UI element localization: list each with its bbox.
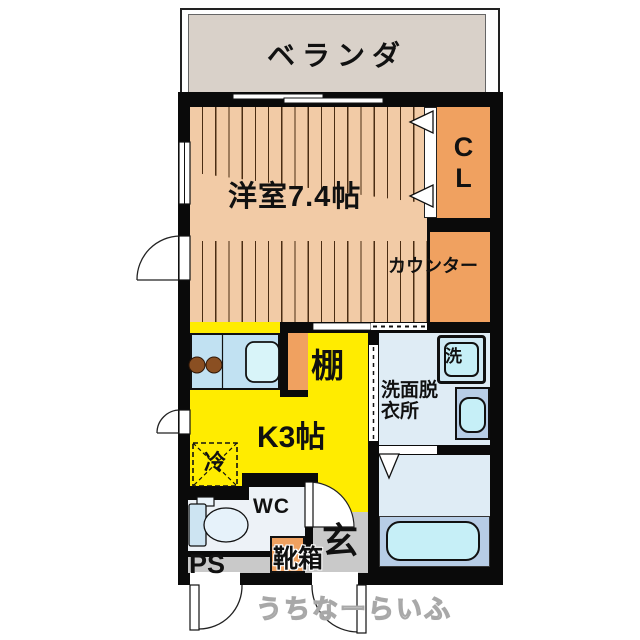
wc-label: WC bbox=[253, 495, 290, 518]
washroom-label: 洗面脱 衣所 bbox=[381, 380, 438, 422]
western-room-label: 洋室7.4帖 bbox=[228, 182, 361, 214]
entrance-label: 玄 bbox=[322, 521, 358, 561]
window-symbol bbox=[179, 142, 190, 204]
shoe-box-label: 靴箱 bbox=[273, 546, 323, 574]
folding-door-symbol bbox=[410, 111, 433, 207]
kitchen-label: K3帖 bbox=[257, 421, 325, 454]
sliding-door-symbol bbox=[313, 323, 427, 330]
shelf-label: 棚 bbox=[311, 348, 344, 384]
door-arc-symbol bbox=[190, 585, 242, 630]
watermark-text: うちなーらいふ bbox=[256, 595, 452, 624]
toilet-symbol bbox=[189, 497, 248, 546]
kitchen-sink-symbol bbox=[246, 342, 279, 382]
symbols-overlay bbox=[0, 0, 640, 640]
sliding-door-symbol bbox=[369, 345, 378, 441]
stove-burners-symbol bbox=[189, 334, 223, 389]
door-arc-symbol bbox=[137, 236, 190, 280]
folding-door-symbol bbox=[379, 446, 437, 478]
door-arc-symbol bbox=[157, 410, 190, 434]
washroom-label-line2: 衣所 bbox=[381, 401, 419, 422]
refrigerator-label: 冷 bbox=[204, 451, 226, 475]
washing-machine-label: 洗 bbox=[445, 348, 462, 367]
counter-label: カウンター bbox=[388, 257, 478, 277]
pipe-space-label: PS bbox=[189, 550, 225, 580]
washroom-label-line1: 洗面脱 bbox=[381, 380, 438, 401]
floorplan-canvas: ベランダ C L bbox=[0, 0, 640, 640]
sliding-window-symbol bbox=[233, 94, 383, 103]
